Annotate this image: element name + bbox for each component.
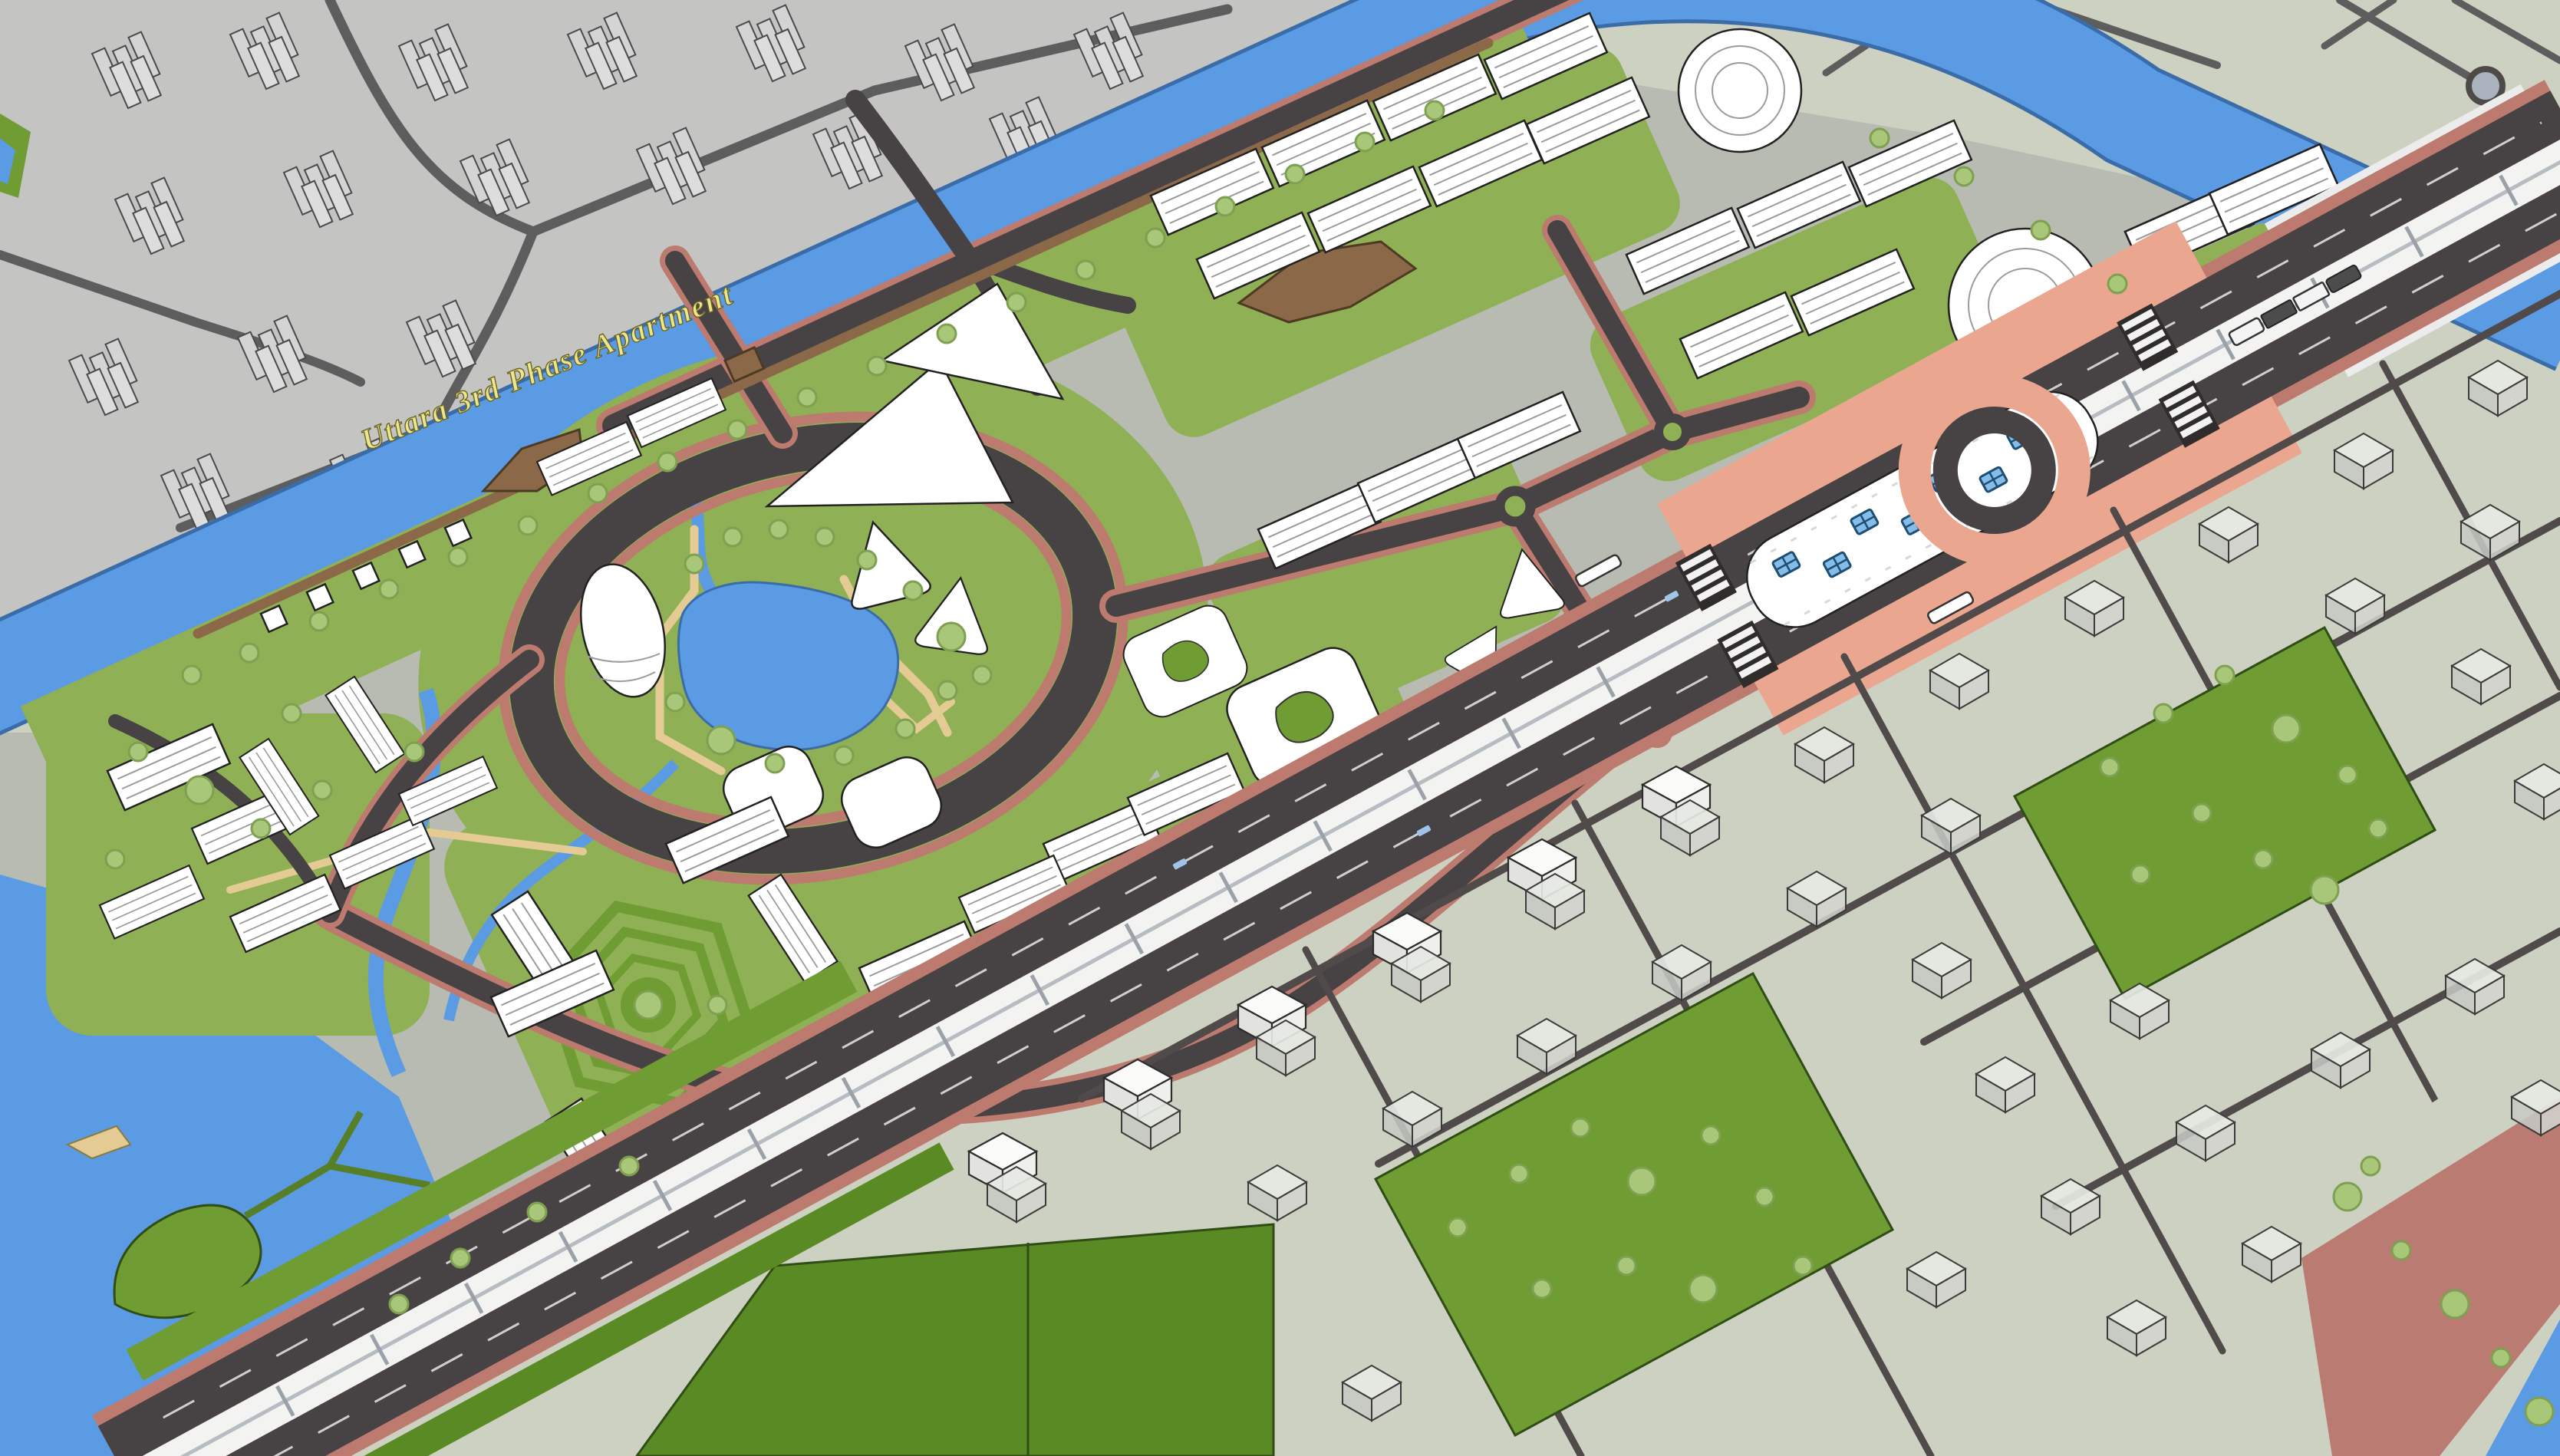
masterplan-canvas: Uttara 3rd Phase Apartment <box>0 0 2560 1456</box>
masterplan-render: Uttara 3rd Phase Apartment <box>0 0 2560 1456</box>
cylinder-tower <box>1679 29 1801 152</box>
mini-roundabout <box>1500 491 1530 522</box>
mini-roundabout <box>1659 418 1686 446</box>
